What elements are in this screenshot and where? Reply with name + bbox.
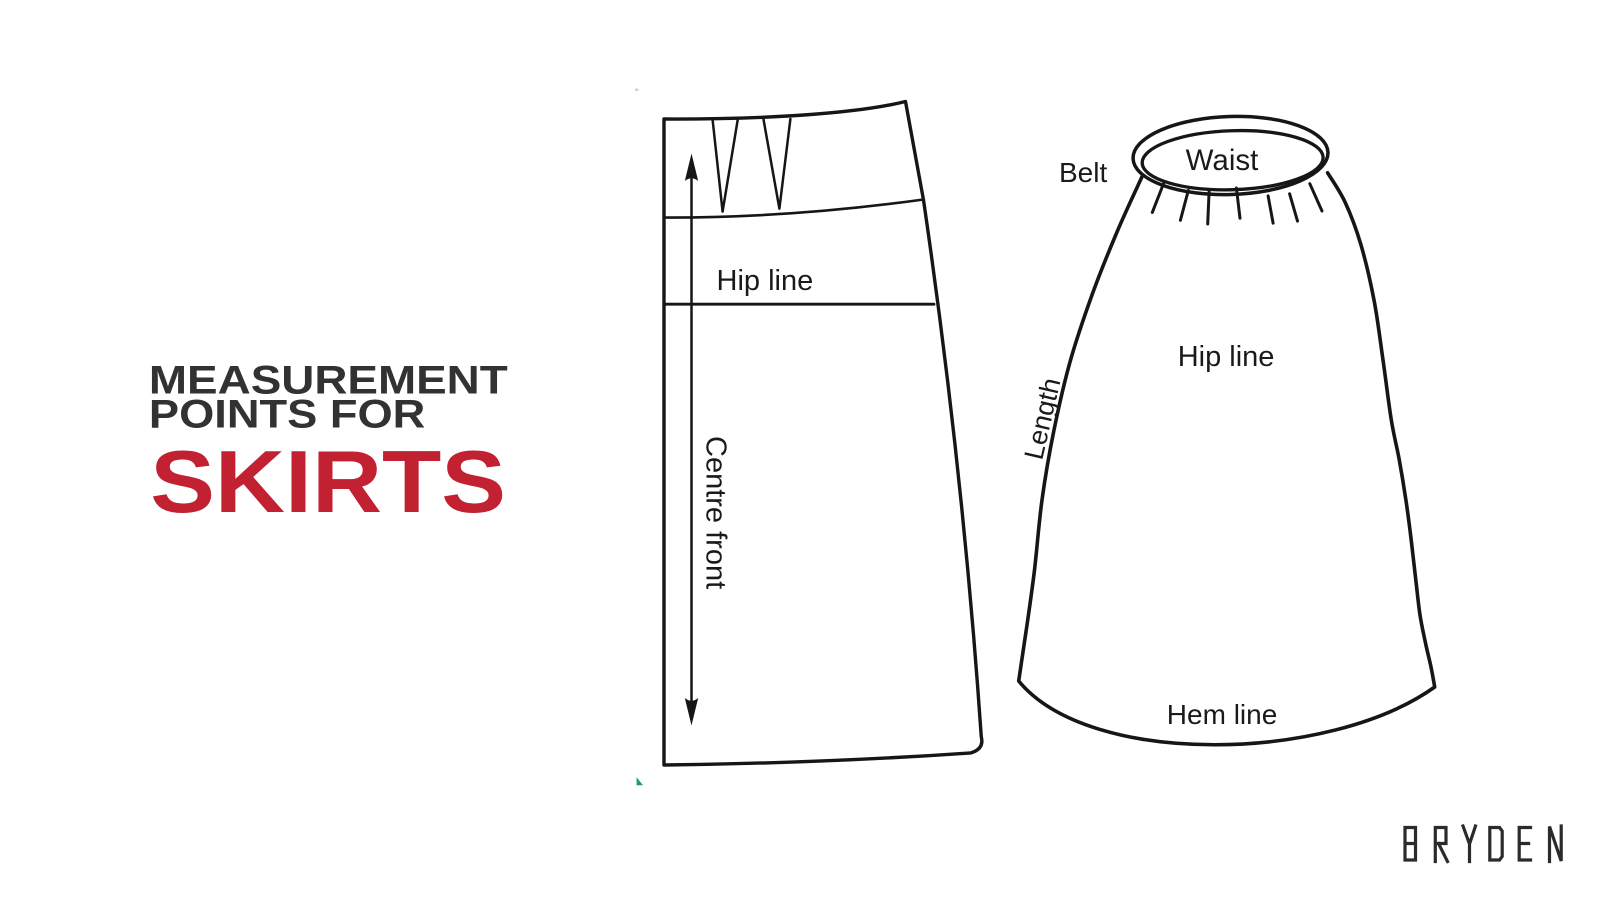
svg-text:SKIRTS: SKIRTS bbox=[150, 432, 506, 531]
svg-text:Hip line: Hip line bbox=[1178, 341, 1275, 373]
svg-text:Belt: Belt bbox=[1059, 157, 1107, 188]
svg-text:Waist: Waist bbox=[1186, 144, 1259, 177]
svg-text:Centre front: Centre front bbox=[700, 436, 732, 589]
svg-text:Hem line: Hem line bbox=[1167, 699, 1277, 730]
svg-text:Length: Length bbox=[1019, 375, 1067, 462]
svg-text:POINTS FOR: POINTS FOR bbox=[149, 392, 425, 437]
svg-text:Hip line: Hip line bbox=[717, 265, 814, 297]
